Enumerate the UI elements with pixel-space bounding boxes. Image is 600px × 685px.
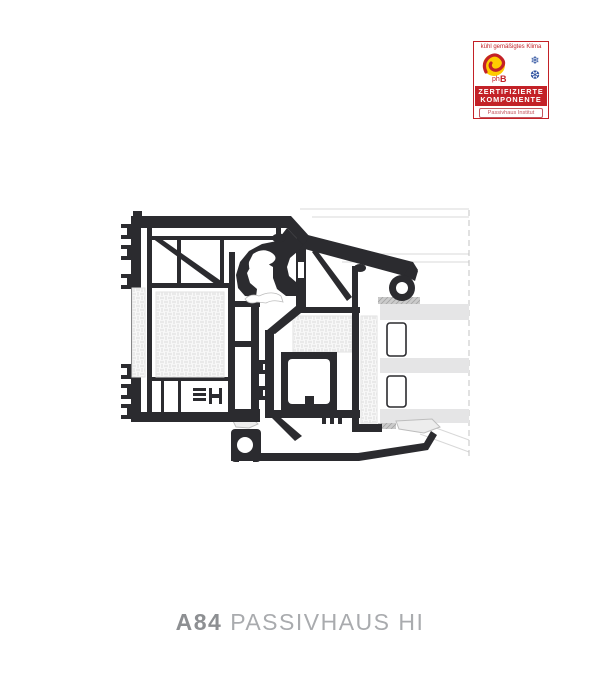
badge-cert-line2: KOMPONENTE xyxy=(475,96,547,104)
spacer-bar xyxy=(387,323,406,356)
product-title: A84 PASSIVHAUS HI xyxy=(0,609,600,636)
glass-pane xyxy=(380,304,469,320)
insulation-hatch xyxy=(156,292,224,377)
snowflake-icon: ❆ xyxy=(530,69,540,81)
snowflake-icon: ❄ xyxy=(530,56,539,67)
insulation-hatch xyxy=(361,316,377,423)
glass-pane xyxy=(380,358,469,373)
insulation-hatch xyxy=(293,316,352,352)
glazing-unit xyxy=(378,297,469,433)
glazing-bead xyxy=(396,419,440,433)
phi-component-logo-icon: ph B xyxy=(480,52,510,84)
badge-climate-label: kühl gemäßigtes Klima xyxy=(474,44,548,51)
badge-institute-label: Passivhaus Institut xyxy=(479,108,543,118)
page: kühl gemäßigtes Klima ph B ❄ ❆ ZERTIFIZI… xyxy=(0,0,600,685)
badge-snowflakes: ❄ ❆ xyxy=(530,56,540,81)
product-name: PASSIVHAUS HI xyxy=(230,609,424,635)
badge-logo-row: ph B ❄ ❆ xyxy=(474,51,548,85)
passivhaus-certificate-badge: kühl gemäßigtes Klima ph B ❄ ❆ ZERTIFIZI… xyxy=(473,41,549,119)
spacer-bar xyxy=(387,376,406,407)
product-code: A84 xyxy=(176,609,223,635)
insulation-hatch xyxy=(132,288,145,377)
badge-certified-band: ZERTIFIZIERTE KOMPONENTE xyxy=(475,86,547,106)
logo-ph-text: ph xyxy=(492,76,500,83)
logo-b-text: B xyxy=(500,74,507,84)
